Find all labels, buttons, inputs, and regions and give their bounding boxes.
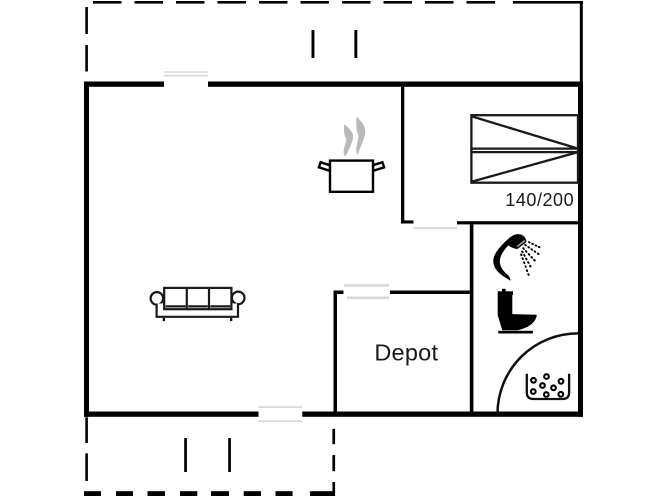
svg-text:Depot: Depot [374,339,438,365]
svg-text:140/200: 140/200 [505,190,574,210]
